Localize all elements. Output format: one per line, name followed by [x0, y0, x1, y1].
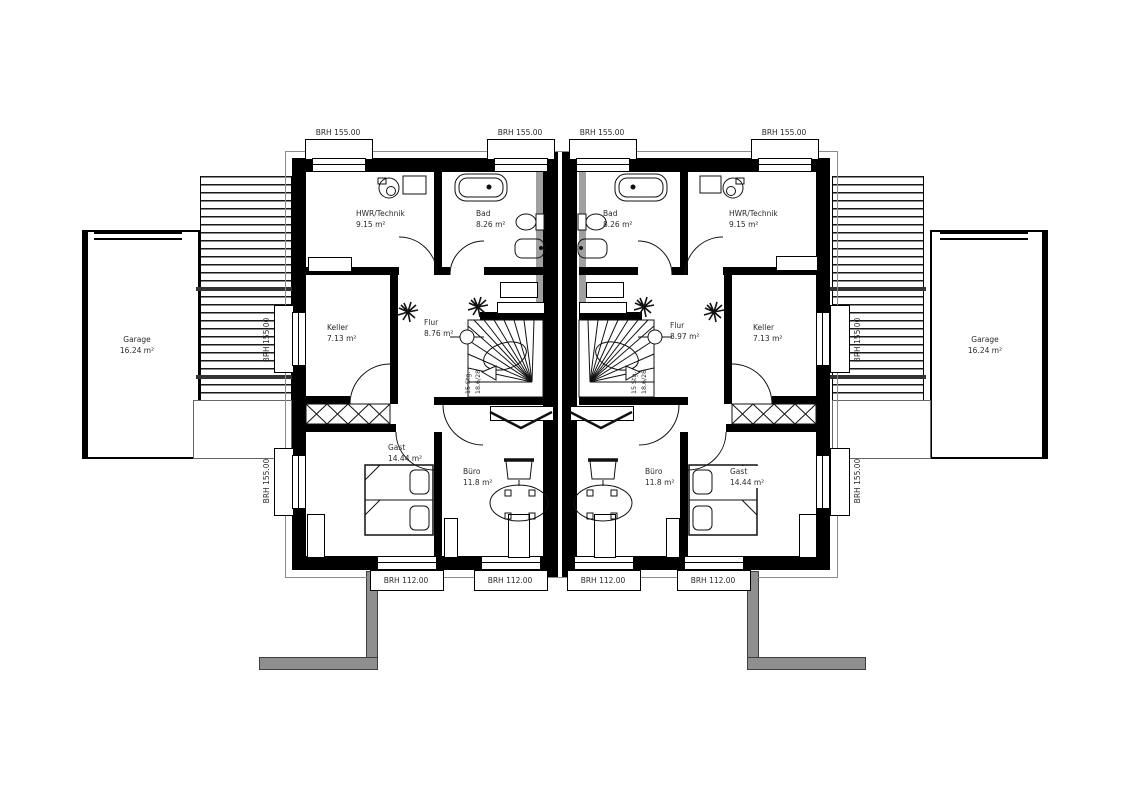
- desk-icon: [490, 485, 548, 521]
- room-area: 9.15 m²: [729, 219, 778, 230]
- room-area: 11.8 m²: [645, 477, 674, 488]
- brh-label-top: BRH 155.00: [572, 127, 632, 138]
- brh-label-bottom: BRH 112.00: [683, 575, 743, 586]
- bed-icon: [365, 465, 433, 535]
- stair-arrow-right: [570, 412, 632, 428]
- stair-note-line: 18.6/28: [640, 346, 650, 394]
- brh-label-side: BRH 155.00: [261, 312, 272, 368]
- washer-icon: [700, 176, 721, 193]
- floor-plan-canvas: HWR/Technik 9.15 m² Bad 8.26 m² Keller 7…: [0, 0, 1123, 794]
- chair-icon: [504, 460, 534, 486]
- room-name: Büro: [463, 466, 492, 477]
- column-marker: [638, 330, 672, 344]
- room-area: 16.24 m²: [945, 345, 1025, 356]
- room-label-hwr-right: HWR/Technik 9.15 m²: [729, 208, 778, 230]
- garage-label-left: Garage 16.24 m²: [97, 334, 177, 356]
- bathtub-icon: [615, 174, 667, 201]
- column-marker: [450, 330, 484, 344]
- room-name: Garage: [97, 334, 177, 345]
- room-name: Gast: [730, 466, 764, 477]
- hatch-strip-right: [732, 404, 816, 424]
- washer-icon: [403, 176, 426, 194]
- brh-label-side: BRH 155.00: [261, 453, 272, 509]
- washbasin-icon: [723, 178, 744, 198]
- room-label-buero-left: Büro 11.8 m²: [463, 466, 492, 488]
- room-area: 9.15 m²: [356, 219, 405, 230]
- room-label-buero-right: Büro 11.8 m²: [645, 466, 674, 488]
- room-label-flur-left: Flur 8.76 m²: [424, 317, 453, 339]
- toilet-icon: [516, 214, 544, 230]
- toilet-icon: [578, 214, 606, 230]
- room-name: Flur: [424, 317, 453, 328]
- room-name: HWR/Technik: [356, 208, 405, 219]
- room-area: 7.13 m²: [327, 333, 356, 344]
- room-area: 14.44 m²: [388, 453, 422, 464]
- room-area: 8.76 m²: [424, 328, 453, 339]
- door-arcs: [350, 237, 772, 470]
- room-name: Bad: [476, 208, 505, 219]
- desk-icon: [574, 485, 632, 521]
- room-label-hwr-left: HWR/Technik 9.15 m²: [356, 208, 405, 230]
- room-area: 8.97 m²: [670, 331, 699, 342]
- stair-note-line: 18.6/28: [474, 346, 484, 394]
- room-label-keller-left: Keller 7.13 m²: [327, 322, 356, 344]
- room-label-keller-right: Keller 7.13 m²: [753, 322, 782, 344]
- brh-label-bottom: BRH 112.00: [480, 575, 540, 586]
- room-area: 8.26 m²: [476, 219, 505, 230]
- room-label-gast-right: Gast 14.44 m²: [730, 466, 764, 488]
- room-name: Keller: [753, 322, 782, 333]
- room-name: Bad: [603, 208, 632, 219]
- room-area: 11.8 m²: [463, 477, 492, 488]
- room-label-gast-left: Gast 14.44 m²: [388, 442, 422, 464]
- room-area: 16.24 m²: [97, 345, 177, 356]
- washbasin-icon: [378, 178, 399, 198]
- room-name: Keller: [327, 322, 356, 333]
- stair-note-right: 15 Stg. 18.6/28: [630, 346, 650, 394]
- plan-linework: [0, 0, 1123, 794]
- room-area: 8.26 m²: [603, 219, 632, 230]
- room-name: Garage: [945, 334, 1025, 345]
- room-label-bad-left: Bad 8.26 m²: [476, 208, 505, 230]
- brh-label-bottom: BRH 112.00: [376, 575, 436, 586]
- brh-label-top: BRH 155.00: [490, 127, 550, 138]
- room-name: Büro: [645, 466, 674, 477]
- stair-note-line: 15 Stg.: [630, 346, 640, 394]
- bathtub-icon: [455, 174, 507, 201]
- chair-icon: [588, 460, 618, 486]
- room-area: 14.44 m²: [730, 477, 764, 488]
- sink-icon: [515, 239, 544, 258]
- room-name: HWR/Technik: [729, 208, 778, 219]
- stair-note-line: 15 Stg.: [464, 346, 474, 394]
- brh-label-side: BRH 155.00: [852, 312, 863, 368]
- room-area: 7.13 m²: [753, 333, 782, 344]
- garage-label-right: Garage 16.24 m²: [945, 334, 1025, 356]
- brh-label-bottom: BRH 112.00: [573, 575, 633, 586]
- sink-icon: [578, 239, 607, 258]
- hatch-strip-left: [306, 404, 390, 424]
- brh-label-side: BRH 155.00: [852, 453, 863, 509]
- room-name: Flur: [670, 320, 699, 331]
- room-name: Gast: [388, 442, 422, 453]
- brh-label-top: BRH 155.00: [754, 127, 814, 138]
- stair-note-left: 15 Stg. 18.6/28: [464, 346, 484, 394]
- brh-label-top: BRH 155.00: [308, 127, 368, 138]
- room-label-bad-right: Bad 8.26 m²: [603, 208, 632, 230]
- stair-arrow-left: [490, 412, 552, 428]
- room-label-flur-right: Flur 8.97 m²: [670, 320, 699, 342]
